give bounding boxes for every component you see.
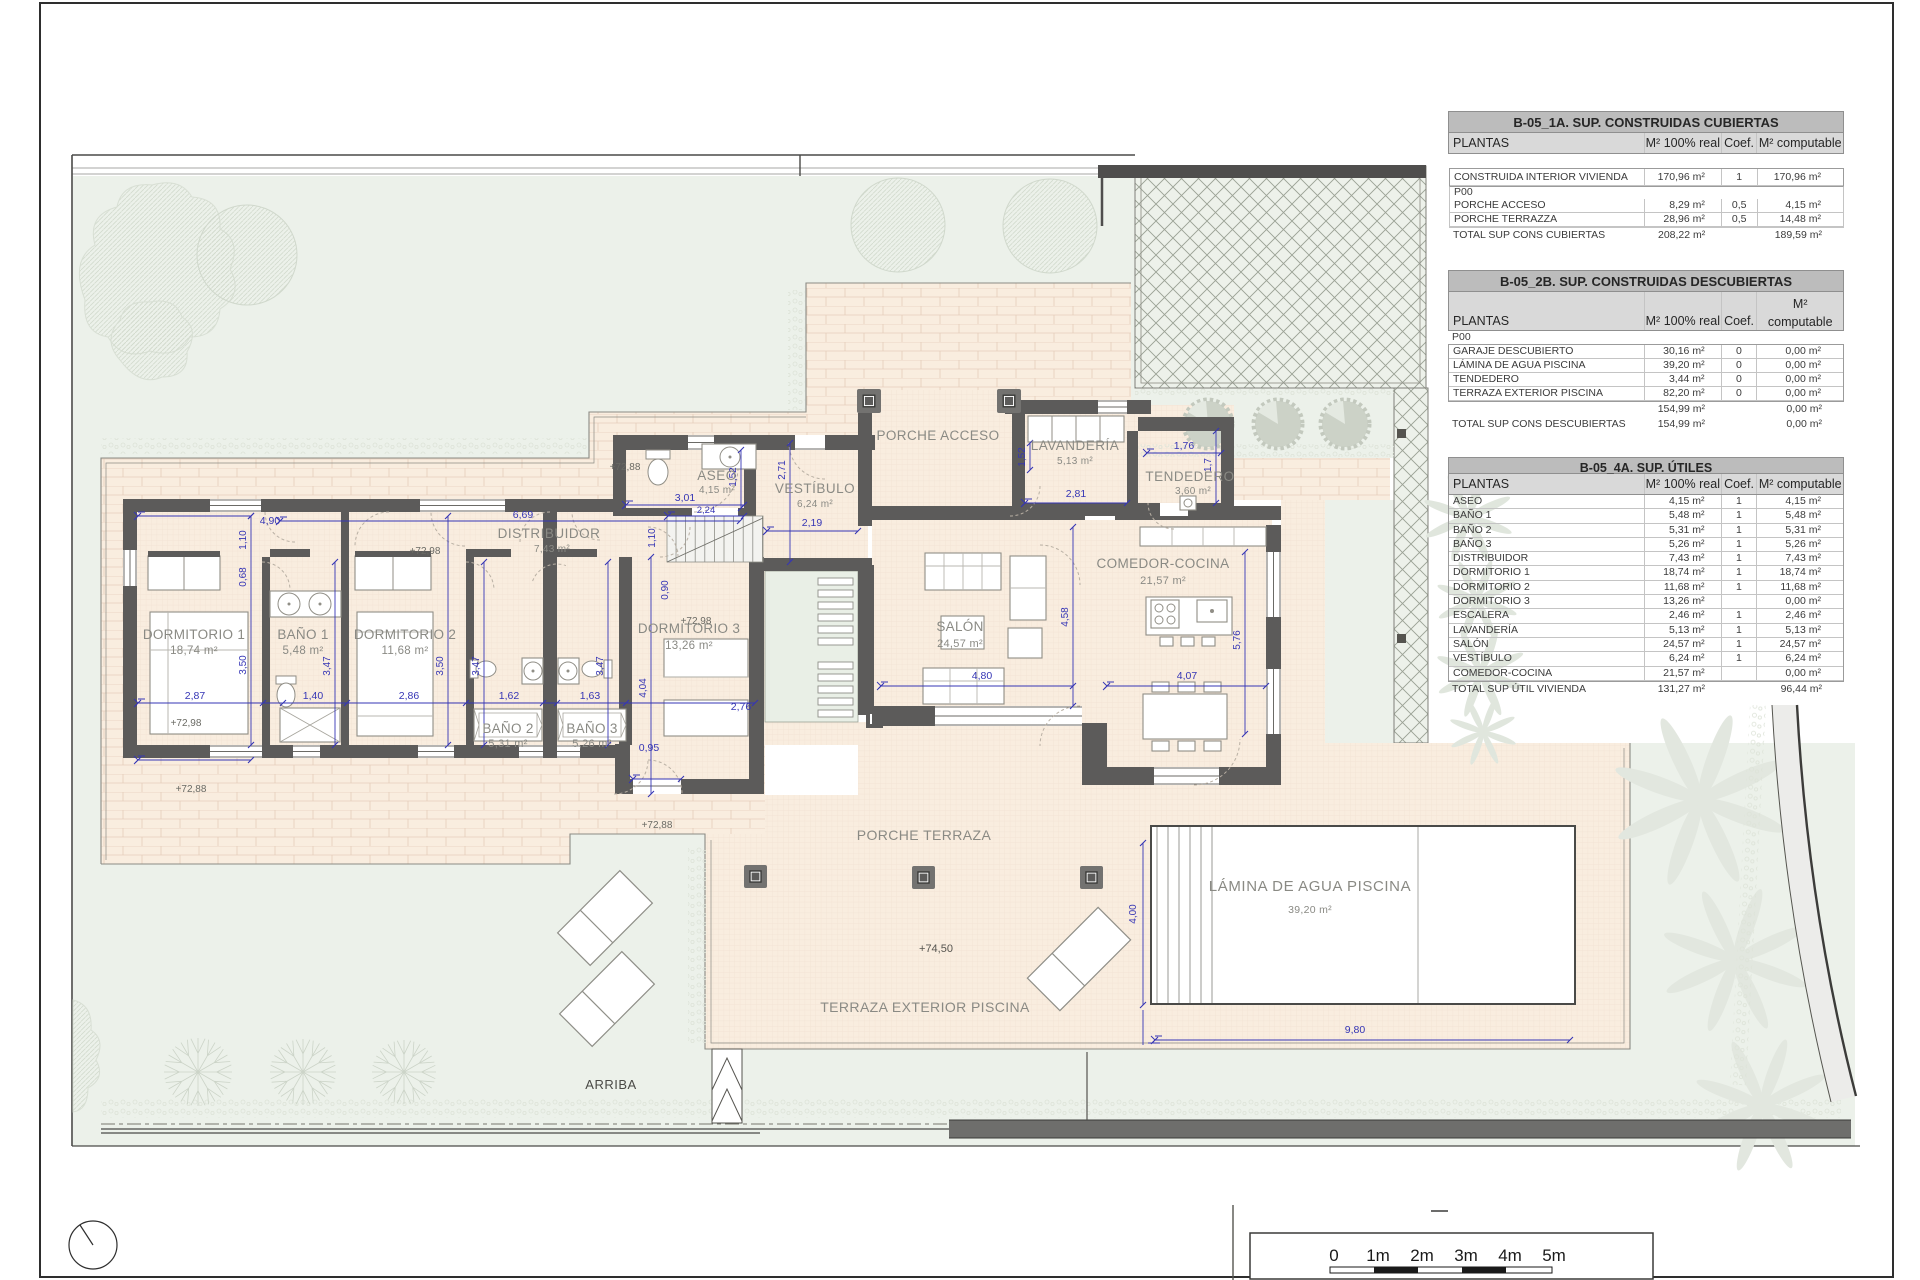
svg-text:1,10: 1,10 (238, 530, 249, 550)
svg-text:39,20 m²: 39,20 m² (1288, 904, 1332, 916)
svg-text:TERRAZA EXTERIOR PISCINA: TERRAZA EXTERIOR PISCINA (820, 999, 1030, 1015)
svg-text:BAÑO 1: BAÑO 1 (277, 627, 328, 642)
svg-text:2,24: 2,24 (697, 505, 716, 516)
svg-text:ARRIBA: ARRIBA (585, 1077, 636, 1092)
svg-text:24,57 m²: 24,57 m² (937, 638, 983, 650)
svg-text:21,57 m²: 21,57 m² (1140, 575, 1186, 587)
svg-text:+72,88: +72,88 (642, 820, 673, 831)
svg-text:+72,88: +72,88 (176, 784, 207, 795)
svg-text:5m: 5m (1542, 1246, 1566, 1265)
svg-text:1,52: 1,52 (1017, 447, 1028, 467)
svg-text:+72,98: +72,98 (410, 546, 441, 557)
svg-text:SALÓN: SALÓN (936, 619, 983, 634)
svg-text:4,00: 4,00 (1128, 904, 1139, 924)
svg-text:+72,98: +72,98 (171, 718, 202, 729)
svg-text:LAVANDERÍA: LAVANDERÍA (1031, 438, 1120, 453)
svg-text:3,50: 3,50 (238, 655, 249, 675)
svg-text:1,63: 1,63 (580, 690, 601, 702)
svg-text:7,43 m²: 7,43 m² (534, 544, 570, 555)
svg-text:2,86: 2,86 (399, 690, 420, 702)
svg-text:5,76: 5,76 (1232, 630, 1243, 650)
svg-text:2m: 2m (1410, 1246, 1434, 1265)
svg-text:3,01: 3,01 (675, 492, 696, 504)
svg-text:0,68: 0,68 (238, 567, 249, 587)
svg-text:TENDEDERO: TENDEDERO (1145, 469, 1234, 484)
svg-text:BAÑO 2: BAÑO 2 (482, 721, 533, 736)
svg-text:1,40: 1,40 (303, 690, 324, 702)
svg-text:4,80: 4,80 (972, 670, 993, 682)
svg-text:3,47: 3,47 (471, 656, 482, 676)
svg-text:3,47: 3,47 (595, 656, 606, 676)
svg-text:LÁMINA DE AGUA PISCINA: LÁMINA DE AGUA PISCINA (1209, 878, 1411, 895)
svg-text:+74,50: +74,50 (919, 943, 953, 955)
svg-text:13,26 m²: 13,26 m² (665, 640, 713, 652)
svg-text:9,80: 9,80 (1345, 1024, 1366, 1036)
svg-text:3,60 m²: 3,60 m² (1175, 486, 1211, 497)
svg-text:4,07: 4,07 (1177, 670, 1198, 682)
svg-text:4,15 m²: 4,15 m² (699, 485, 735, 496)
svg-text:COMEDOR-COCINA: COMEDOR-COCINA (1096, 556, 1229, 571)
svg-text:5,48 m²: 5,48 m² (282, 645, 323, 657)
svg-text:ASEO: ASEO (697, 468, 737, 483)
svg-text:4,04: 4,04 (638, 678, 649, 698)
svg-text:DORMITORIO 1: DORMITORIO 1 (143, 627, 245, 642)
svg-text:5,26 m²: 5,26 m² (572, 738, 611, 750)
svg-text:DISTRIBUIDOR: DISTRIBUIDOR (498, 526, 601, 541)
svg-text:4m: 4m (1498, 1246, 1522, 1265)
svg-text:1,62: 1,62 (499, 690, 520, 702)
svg-text:1,10: 1,10 (647, 528, 658, 548)
svg-text:0: 0 (1329, 1246, 1338, 1265)
svg-text:2,71: 2,71 (777, 460, 788, 480)
svg-text:6,24 m²: 6,24 m² (797, 499, 833, 510)
svg-text:0,95: 0,95 (639, 742, 660, 754)
svg-text:3m: 3m (1454, 1246, 1478, 1265)
svg-text:3,47: 3,47 (322, 656, 333, 676)
svg-text:2,87: 2,87 (185, 690, 206, 702)
svg-text:+72,98: +72,98 (681, 616, 712, 627)
svg-text:PORCHE ACCESO: PORCHE ACCESO (877, 428, 1000, 443)
svg-text:5,13 m²: 5,13 m² (1057, 456, 1093, 467)
svg-text:VESTÍBULO: VESTÍBULO (775, 481, 855, 496)
svg-text:+72,88: +72,88 (610, 462, 641, 473)
svg-text:2,81: 2,81 (1066, 488, 1087, 500)
svg-text:0,90: 0,90 (660, 580, 671, 600)
svg-text:1,76: 1,76 (1174, 440, 1195, 452)
svg-text:18,74 m²: 18,74 m² (170, 645, 218, 657)
svg-text:BAÑO 3: BAÑO 3 (566, 721, 617, 736)
svg-text:PORCHE TERRAZA: PORCHE TERRAZA (857, 827, 992, 843)
svg-text:1m: 1m (1366, 1246, 1390, 1265)
svg-text:3,50: 3,50 (435, 656, 446, 676)
svg-text:6,69: 6,69 (513, 509, 534, 521)
svg-text:4,90: 4,90 (260, 515, 281, 527)
svg-text:2,76: 2,76 (731, 701, 752, 713)
svg-text:DORMITORIO 2: DORMITORIO 2 (354, 627, 456, 642)
svg-text:11,68 m²: 11,68 m² (382, 645, 429, 657)
svg-text:4,58: 4,58 (1060, 607, 1071, 627)
svg-text:5,31 m²: 5,31 m² (488, 738, 527, 750)
svg-text:2,19: 2,19 (802, 517, 823, 529)
